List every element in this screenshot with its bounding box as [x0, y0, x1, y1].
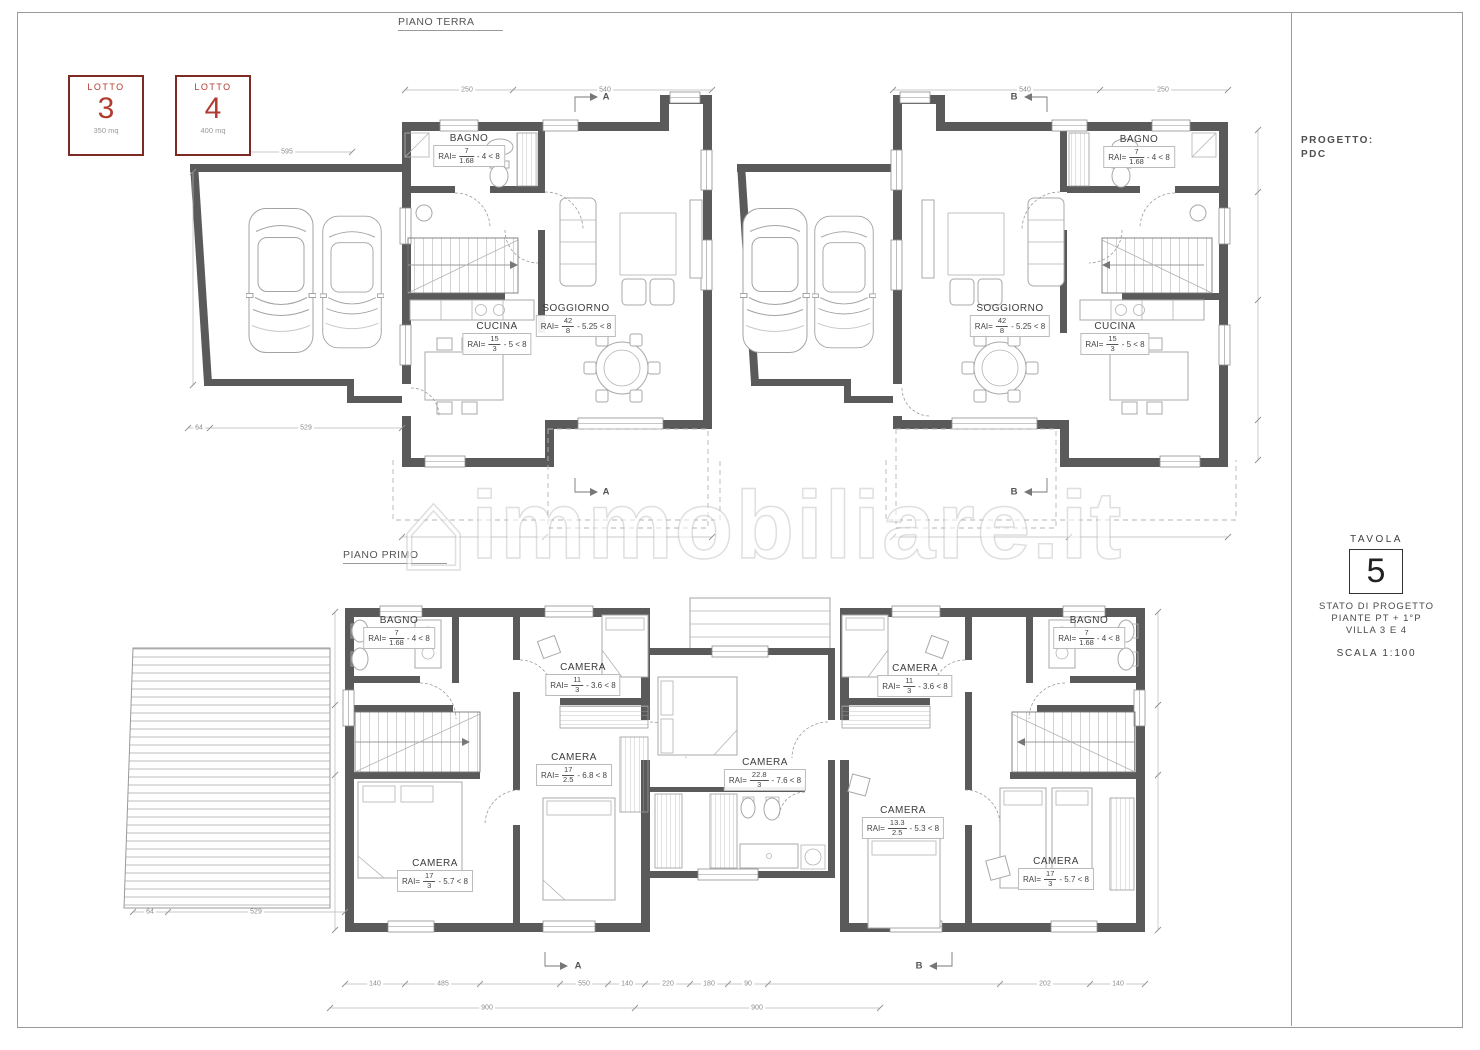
rai-check: - 5.25 < 8 [1011, 322, 1045, 331]
rai-ratio-box: RAI=22.83- 7.6 < 8 [724, 769, 806, 791]
rai-prefix: RAI= [1058, 634, 1076, 643]
dimension-label: 900 [479, 1005, 495, 1012]
rai-prefix: RAI= [882, 682, 900, 691]
section-mark-b: B [1011, 487, 1018, 498]
rai-denominator: 3 [1106, 345, 1118, 354]
rai-prefix: RAI= [867, 824, 885, 833]
dimension-label: 595 [279, 149, 295, 156]
room-label-bagno: BAGNORAI=71.68- 4 < 8 [1103, 134, 1175, 168]
rai-denominator: 2.5 [562, 776, 574, 785]
room-name: BAGNO [363, 615, 435, 626]
rai-ratio-box: RAI=173- 5.7 < 8 [1018, 868, 1094, 890]
rai-check: - 5.25 < 8 [577, 322, 611, 331]
dimension-label: 550 [576, 981, 592, 988]
rai-ratio-box: RAI=71.68- 4 < 8 [1103, 146, 1175, 168]
room-label-bagno: BAGNORAI=71.68- 4 < 8 [363, 615, 435, 649]
rai-denominator: 1.68 [1129, 158, 1144, 167]
rai-check: - 5 < 8 [1122, 340, 1145, 349]
dimension-label: 250 [459, 87, 475, 94]
rai-prefix: RAI= [438, 152, 456, 161]
rai-check: - 5.7 < 8 [1059, 875, 1089, 884]
room-label-soggiorno: SOGGIORNORAI=428- 5.25 < 8 [536, 303, 616, 337]
room-name: SOGGIORNO [536, 303, 616, 314]
rai-prefix: RAI= [1108, 153, 1126, 162]
dimension-label: 202 [1037, 981, 1053, 988]
rai-denominator: 3 [903, 687, 915, 696]
rai-check: - 5.7 < 8 [438, 877, 468, 886]
rai-ratio-box: RAI=428- 5.25 < 8 [536, 315, 616, 337]
room-label-cucina: CUCINARAI=153- 5 < 8 [1080, 321, 1149, 355]
room-label-camera: CAMERARAI=113- 3.6 < 8 [545, 662, 620, 696]
rai-check: - 6.8 < 8 [577, 771, 607, 780]
room-name: CAMERA [545, 662, 620, 673]
rai-ratio-box: RAI=71.68- 4 < 8 [1053, 627, 1125, 649]
rai-ratio-box: RAI=113- 3.6 < 8 [545, 674, 620, 696]
rai-denominator: 3 [571, 686, 583, 695]
rai-prefix: RAI= [467, 340, 485, 349]
section-mark-b: B [1011, 92, 1018, 103]
room-name: BAGNO [1103, 134, 1175, 145]
rai-prefix: RAI= [550, 681, 568, 690]
drawing-sheet: PIANO TERRA PIANO PRIMO LOTTO3350 mqLOTT… [0, 0, 1480, 1050]
rai-prefix: RAI= [541, 771, 559, 780]
rai-check: - 3.6 < 8 [586, 681, 616, 690]
label-overlay: BAGNORAI=71.68- 4 < 8SOGGIORNORAI=428- 5… [0, 0, 1480, 1050]
rai-ratio-box: RAI=113- 3.6 < 8 [877, 675, 952, 697]
rai-ratio-box: RAI=173- 5.7 < 8 [397, 870, 473, 892]
room-name: BAGNO [433, 133, 505, 144]
dimension-label: 64 [193, 425, 205, 432]
rai-denominator: 3 [488, 345, 500, 354]
rai-check: - 4 < 8 [477, 152, 500, 161]
rai-check: - 4 < 8 [1097, 634, 1120, 643]
rai-denominator: 3 [1044, 880, 1056, 889]
room-name: CAMERA [397, 858, 473, 869]
rai-check: - 5.3 < 8 [910, 824, 940, 833]
rai-denominator: 3 [750, 781, 769, 790]
rai-denominator: 1.68 [389, 639, 404, 648]
section-mark-a: A [575, 961, 582, 972]
rai-prefix: RAI= [541, 322, 559, 331]
room-name: SOGGIORNO [970, 303, 1050, 314]
room-label-camera: CAMERARAI=173- 5.7 < 8 [1018, 856, 1094, 890]
dimension-label: 540 [1017, 87, 1033, 94]
rai-check: - 3.6 < 8 [918, 682, 948, 691]
room-name: CAMERA [536, 752, 612, 763]
rai-check: - 5 < 8 [504, 340, 527, 349]
section-mark-a: A [603, 487, 610, 498]
rai-denominator: 8 [996, 327, 1008, 336]
rai-ratio-box: RAI=428- 5.25 < 8 [970, 315, 1050, 337]
rai-denominator: 1.68 [1079, 639, 1094, 648]
dimension-label: 485 [435, 981, 451, 988]
rai-prefix: RAI= [1085, 340, 1103, 349]
room-name: BAGNO [1053, 615, 1125, 626]
rai-ratio-box: RAI=13.32.5- 5.3 < 8 [862, 817, 944, 839]
dimension-label: 140 [1110, 981, 1126, 988]
dimension-label: 180 [701, 981, 717, 988]
dimension-label: 250 [1155, 87, 1171, 94]
room-name: CAMERA [724, 757, 806, 768]
room-name: CUCINA [462, 321, 531, 332]
rai-denominator: 3 [423, 882, 435, 891]
rai-prefix: RAI= [368, 634, 386, 643]
rai-denominator: 2.5 [888, 829, 907, 838]
rai-ratio-box: RAI=172.5- 6.8 < 8 [536, 764, 612, 786]
room-name: CAMERA [862, 805, 944, 816]
rai-check: - 4 < 8 [407, 634, 430, 643]
rai-check: - 7.6 < 8 [772, 776, 802, 785]
room-label-bagno: BAGNORAI=71.68- 4 < 8 [1053, 615, 1125, 649]
rai-prefix: RAI= [975, 322, 993, 331]
rai-check: - 4 < 8 [1147, 153, 1170, 162]
dimension-label: 529 [248, 909, 264, 916]
dimension-label: 529 [298, 425, 314, 432]
rai-prefix: RAI= [729, 776, 747, 785]
room-label-camera: CAMERARAI=172.5- 6.8 < 8 [536, 752, 612, 786]
section-mark-b: B [916, 961, 923, 972]
rai-denominator: 8 [562, 327, 574, 336]
rai-ratio-box: RAI=71.68- 4 < 8 [363, 627, 435, 649]
rai-ratio-box: RAI=153- 5 < 8 [462, 333, 531, 355]
rai-denominator: 1.68 [459, 157, 474, 166]
rai-ratio-box: RAI=153- 5 < 8 [1080, 333, 1149, 355]
room-label-cucina: CUCINARAI=153- 5 < 8 [462, 321, 531, 355]
rai-ratio-box: RAI=71.68- 4 < 8 [433, 145, 505, 167]
rai-prefix: RAI= [1023, 875, 1041, 884]
room-name: CAMERA [877, 663, 952, 674]
dimension-label: 140 [367, 981, 383, 988]
room-label-camera: CAMERARAI=13.32.5- 5.3 < 8 [862, 805, 944, 839]
dimension-label: 900 [749, 1005, 765, 1012]
section-mark-a: A [603, 92, 610, 103]
dimension-label: 90 [742, 981, 754, 988]
room-label-camera: CAMERARAI=22.83- 7.6 < 8 [724, 757, 806, 791]
room-label-camera: CAMERARAI=113- 3.6 < 8 [877, 663, 952, 697]
rai-prefix: RAI= [402, 877, 420, 886]
room-name: CUCINA [1080, 321, 1149, 332]
room-label-soggiorno: SOGGIORNORAI=428- 5.25 < 8 [970, 303, 1050, 337]
dimension-label: 64 [144, 909, 156, 916]
dimension-label: 140 [619, 981, 635, 988]
room-label-bagno: BAGNORAI=71.68- 4 < 8 [433, 133, 505, 167]
room-label-camera: CAMERARAI=173- 5.7 < 8 [397, 858, 473, 892]
dimension-label: 220 [660, 981, 676, 988]
room-name: CAMERA [1018, 856, 1094, 867]
